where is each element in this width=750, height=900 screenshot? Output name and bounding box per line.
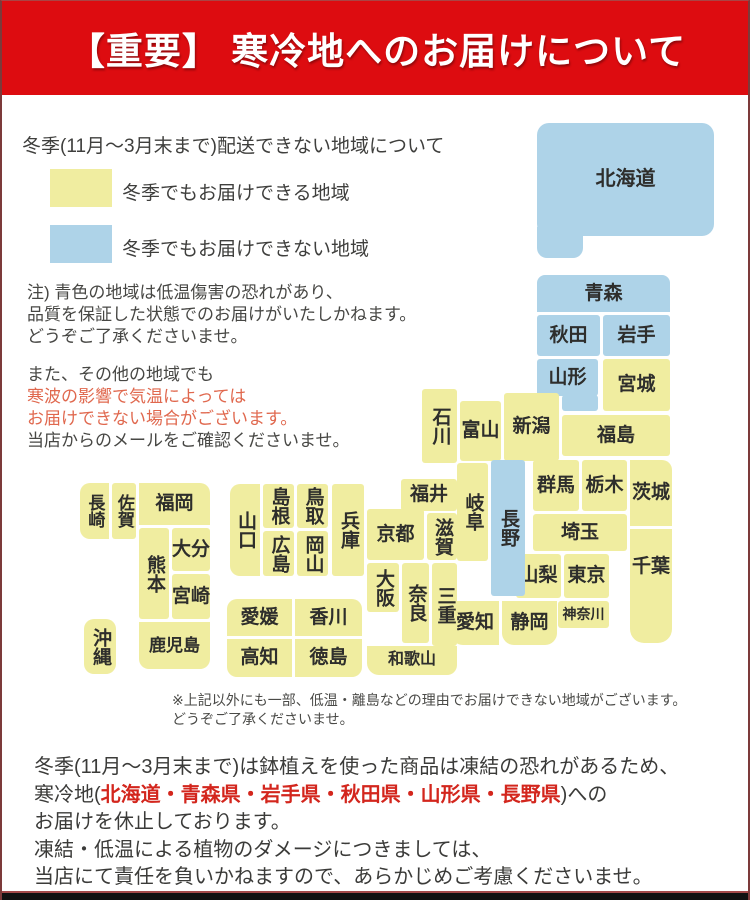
region-label-aichi: 愛知 — [456, 613, 494, 633]
note-line-red: 寒波の影響で気温によっては — [27, 386, 350, 408]
region-tochigi: 栃木 — [582, 460, 627, 511]
footer-line-prefix: 寒冷地( — [34, 784, 101, 806]
region-hiroshima: 広島 — [263, 531, 294, 576]
region-label-fukuoka: 福岡 — [155, 494, 193, 514]
note-line: 品質を保証した状態でのお届けがいたしかねます。 — [27, 304, 416, 326]
map-footnote: ※上記以外にも一部、低温・離島などの理由でお届けできない地域がございます。 どう… — [172, 691, 686, 729]
footer-line: 冬季(11月～3月末まで)は鉢植えを使った商品は凍結の恐れがあるため、 — [34, 754, 679, 782]
region-kagoshima: 鹿児島 — [139, 622, 210, 669]
region-label-tokushima: 徳島 — [309, 648, 347, 668]
note-line: また、その他の地域でも — [27, 364, 350, 386]
note-line: 注) 青色の地域は低温傷害の恐れがあり、 — [27, 282, 416, 304]
note-blue-region: 注) 青色の地域は低温傷害の恐れがあり、 品質を保証した状態でのお届けがいたしか… — [27, 282, 416, 348]
region-iwate: 岩手 — [603, 315, 670, 356]
region-label-kagawa: 香川 — [309, 608, 347, 628]
region-shiga: 滋賀 — [427, 513, 457, 560]
region-saga: 佐賀 — [112, 483, 136, 539]
region-yamagata-tab — [562, 395, 598, 411]
region-ibaraki: 茨城 — [630, 460, 672, 526]
region-label-nagano: 長野 — [498, 509, 518, 547]
region-label-kochi: 高知 — [240, 648, 278, 668]
footnote-line: どうぞご了承くださいませ。 — [172, 710, 686, 729]
region-yamagata: 山形 — [537, 359, 598, 396]
region-ehime: 愛媛 — [227, 599, 292, 636]
region-label-niigata: 新潟 — [512, 417, 550, 437]
region-tokushima: 徳島 — [295, 639, 362, 677]
region-okinawa: 沖縄 — [84, 619, 116, 674]
note-other-region: また、その他の地域でも 寒波の影響で気温によっては お届けできない場合がございま… — [27, 364, 350, 452]
region-nara: 奈良 — [402, 563, 429, 643]
page-title: 【重要】 寒冷地へのお届けについて — [68, 21, 686, 75]
region-label-akita: 秋田 — [549, 326, 587, 346]
region-miyagi: 宮城 — [603, 359, 670, 411]
region-toyama: 富山 — [460, 401, 501, 461]
footer-line: 凍結・低温による植物のダメージにつきましては、 — [34, 837, 679, 865]
region-label-fukui: 福井 — [410, 485, 448, 505]
region-osaka: 大阪 — [367, 563, 399, 612]
region-mie: 三重 — [432, 563, 457, 646]
legend-swatch-not-deliverable — [50, 225, 112, 263]
region-nagasaki: 長崎 — [80, 483, 109, 539]
region-label-miyazaki: 宮崎 — [172, 587, 210, 607]
note-line-red: お届けできない場合がございます。 — [27, 408, 350, 430]
region-fukushima: 福島 — [562, 415, 670, 456]
region-wakayama: 和歌山 — [367, 646, 457, 675]
region-label-toyama: 富山 — [461, 421, 499, 441]
region-akita: 秋田 — [537, 315, 600, 356]
region-chiba: 千葉 — [630, 529, 672, 643]
header-banner: 【重要】 寒冷地へのお届けについて — [2, 1, 750, 95]
cold-region-list: 北海道・青森県・岩手県・秋田県・山形県・長野県 — [101, 784, 561, 806]
note-line: 当店からのメールをご確認くださいませ。 — [27, 430, 350, 452]
region-kochi: 高知 — [227, 639, 292, 677]
region-label-aomori: 青森 — [584, 284, 622, 304]
note-line: どうぞご了承くださいませ。 — [27, 326, 416, 348]
region-label-shimane: 島根 — [269, 487, 289, 525]
region-label-yamagata: 山形 — [548, 368, 586, 388]
region-gifu: 岐阜 — [457, 463, 488, 561]
region-kagawa: 香川 — [295, 599, 362, 636]
legend-label-not-deliverable: 冬季でもお届けできない地域 — [122, 234, 369, 261]
region-label-ishikawa: 石川 — [430, 407, 450, 445]
region-miyazaki: 宮崎 — [172, 574, 210, 619]
region-label-hyogo: 兵庫 — [338, 511, 358, 549]
region-oita: 大分 — [172, 528, 210, 571]
region-saitama: 埼玉 — [533, 514, 627, 551]
region-label-nara: 奈良 — [406, 584, 426, 622]
bottom-black-bar — [2, 893, 750, 900]
footer-line-cold-regions: 寒冷地(北海道・青森県・岩手県・秋田県・山形県・長野県)への — [34, 782, 679, 810]
region-label-shizuoka: 静岡 — [510, 613, 548, 633]
region-kumamoto: 熊本 — [139, 528, 169, 619]
region-okayama: 岡山 — [297, 531, 328, 576]
region-label-iwate: 岩手 — [617, 326, 655, 346]
region-label-tokyo: 東京 — [567, 566, 605, 586]
region-label-hiroshima: 広島 — [269, 535, 289, 573]
region-label-fukushima: 福島 — [597, 426, 635, 446]
footer-notice: 冬季(11月～3月末まで)は鉢植えを使った商品は凍結の恐れがあるため、 寒冷地(… — [34, 754, 679, 892]
region-label-gifu: 岐阜 — [463, 493, 483, 531]
region-niigata: 新潟 — [504, 393, 559, 461]
region-yamanashi: 山梨 — [516, 554, 561, 598]
region-label-ibaraki: 茨城 — [632, 483, 670, 503]
region-label-saga: 佐賀 — [115, 494, 133, 528]
region-aichi: 愛知 — [451, 601, 499, 645]
region-label-ehime: 愛媛 — [240, 608, 278, 628]
region-shizuoka: 静岡 — [502, 601, 557, 645]
region-label-kumamoto: 熊本 — [144, 555, 164, 593]
region-label-hokkaido: 北海道 — [596, 169, 656, 190]
region-hokkaido-tab — [537, 227, 583, 258]
region-label-nagasaki: 長崎 — [86, 494, 104, 528]
region-label-oita: 大分 — [172, 540, 210, 560]
region-nagano: 長野 — [491, 460, 525, 596]
region-kyoto: 京都 — [367, 509, 424, 560]
region-shimane: 島根 — [263, 484, 294, 528]
region-fukui: 福井 — [401, 479, 457, 511]
region-label-mie: 三重 — [435, 586, 455, 624]
footer-line-suffix: )への — [561, 784, 608, 806]
region-label-okinawa: 沖縄 — [90, 628, 110, 666]
legend-swatch-deliverable — [50, 169, 112, 207]
region-aomori: 青森 — [537, 275, 670, 312]
region-label-kanagawa: 神奈川 — [563, 607, 605, 622]
region-label-tottori: 鳥取 — [303, 487, 323, 525]
notice-page: 【重要】 寒冷地へのお届けについて 冬季(11月～3月末まで)配送できない地域に… — [0, 0, 750, 900]
region-label-yamanashi: 山梨 — [519, 566, 557, 586]
region-label-wakayama: 和歌山 — [388, 652, 436, 669]
region-label-chiba: 千葉 — [632, 557, 670, 577]
legend-title: 冬季(11月～3月末まで)配送できない地域について — [22, 131, 444, 158]
region-label-saitama: 埼玉 — [561, 523, 599, 543]
footer-line: 当店にて責任を負いかねますので、あらかじめご考慮くださいませ。 — [34, 864, 679, 892]
region-label-gunma: 群馬 — [537, 476, 575, 496]
region-label-shiga: 滋賀 — [432, 518, 452, 556]
region-label-okayama: 岡山 — [303, 535, 323, 573]
region-label-osaka: 大阪 — [373, 569, 393, 607]
region-label-yamaguchi: 山口 — [235, 511, 255, 549]
region-yamaguchi: 山口 — [230, 484, 260, 576]
region-hokkaido: 北海道 — [537, 123, 714, 236]
region-hyogo: 兵庫 — [332, 484, 364, 576]
region-fukuoka: 福岡 — [139, 483, 210, 525]
region-tokyo: 東京 — [564, 554, 609, 598]
region-tottori: 鳥取 — [297, 484, 328, 528]
region-label-miyagi: 宮城 — [617, 375, 655, 395]
region-label-kagoshima: 鹿児島 — [149, 637, 200, 655]
region-kanagawa: 神奈川 — [558, 601, 609, 628]
region-label-kyoto: 京都 — [376, 525, 414, 545]
footer-line: お届けを休止しております。 — [34, 809, 679, 837]
region-ishikawa: 石川 — [422, 389, 457, 463]
region-gunma: 群馬 — [533, 460, 579, 511]
footnote-line: ※上記以外にも一部、低温・離島などの理由でお届けできない地域がございます。 — [172, 691, 686, 710]
legend-label-deliverable: 冬季でもお届けできる地域 — [122, 178, 350, 205]
region-label-tochigi: 栃木 — [585, 476, 623, 496]
